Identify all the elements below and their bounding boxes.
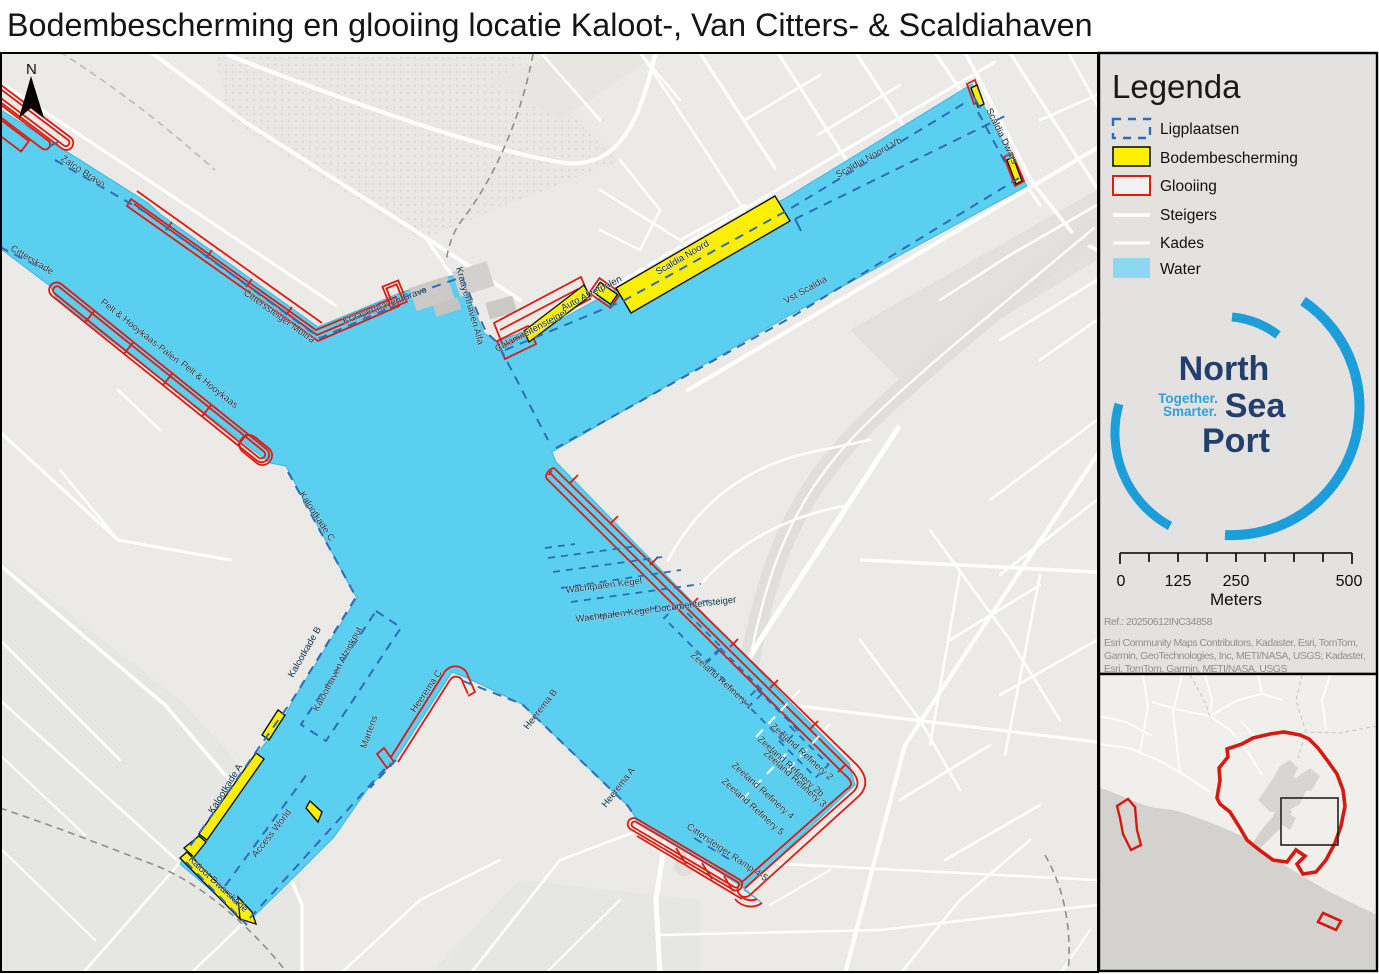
svg-text:Meters: Meters (1210, 590, 1262, 609)
svg-text:Legenda: Legenda (1112, 68, 1241, 105)
svg-text:Water: Water (1160, 261, 1201, 278)
svg-text:250: 250 (1223, 573, 1250, 590)
svg-text:Esri Community Maps Contributo: Esri Community Maps Contributors, Kadast… (1104, 638, 1358, 649)
svg-text:Ligplaatsen: Ligplaatsen (1160, 121, 1239, 138)
svg-text:Glooiing: Glooiing (1160, 178, 1217, 195)
svg-text:North: North (1179, 350, 1270, 388)
svg-text:500: 500 (1336, 573, 1363, 590)
svg-text:Garmin, GeoTechnologies, Inc,: Garmin, GeoTechnologies, Inc, METI/NASA,… (1104, 651, 1365, 662)
svg-text:Port: Port (1202, 422, 1270, 460)
svg-text:125: 125 (1165, 573, 1192, 590)
svg-text:Sea: Sea (1225, 387, 1287, 425)
svg-text:0: 0 (1117, 573, 1126, 590)
svg-text:Steigers: Steigers (1160, 207, 1217, 224)
svg-text:Kades: Kades (1160, 235, 1204, 252)
svg-text:Smarter.: Smarter. (1163, 404, 1217, 419)
svg-text:Bodembescherming: Bodembescherming (1160, 150, 1298, 167)
svg-text:N: N (26, 61, 37, 78)
svg-text:Ref.: 20250612INC34858: Ref.: 20250612INC34858 (1104, 617, 1213, 628)
